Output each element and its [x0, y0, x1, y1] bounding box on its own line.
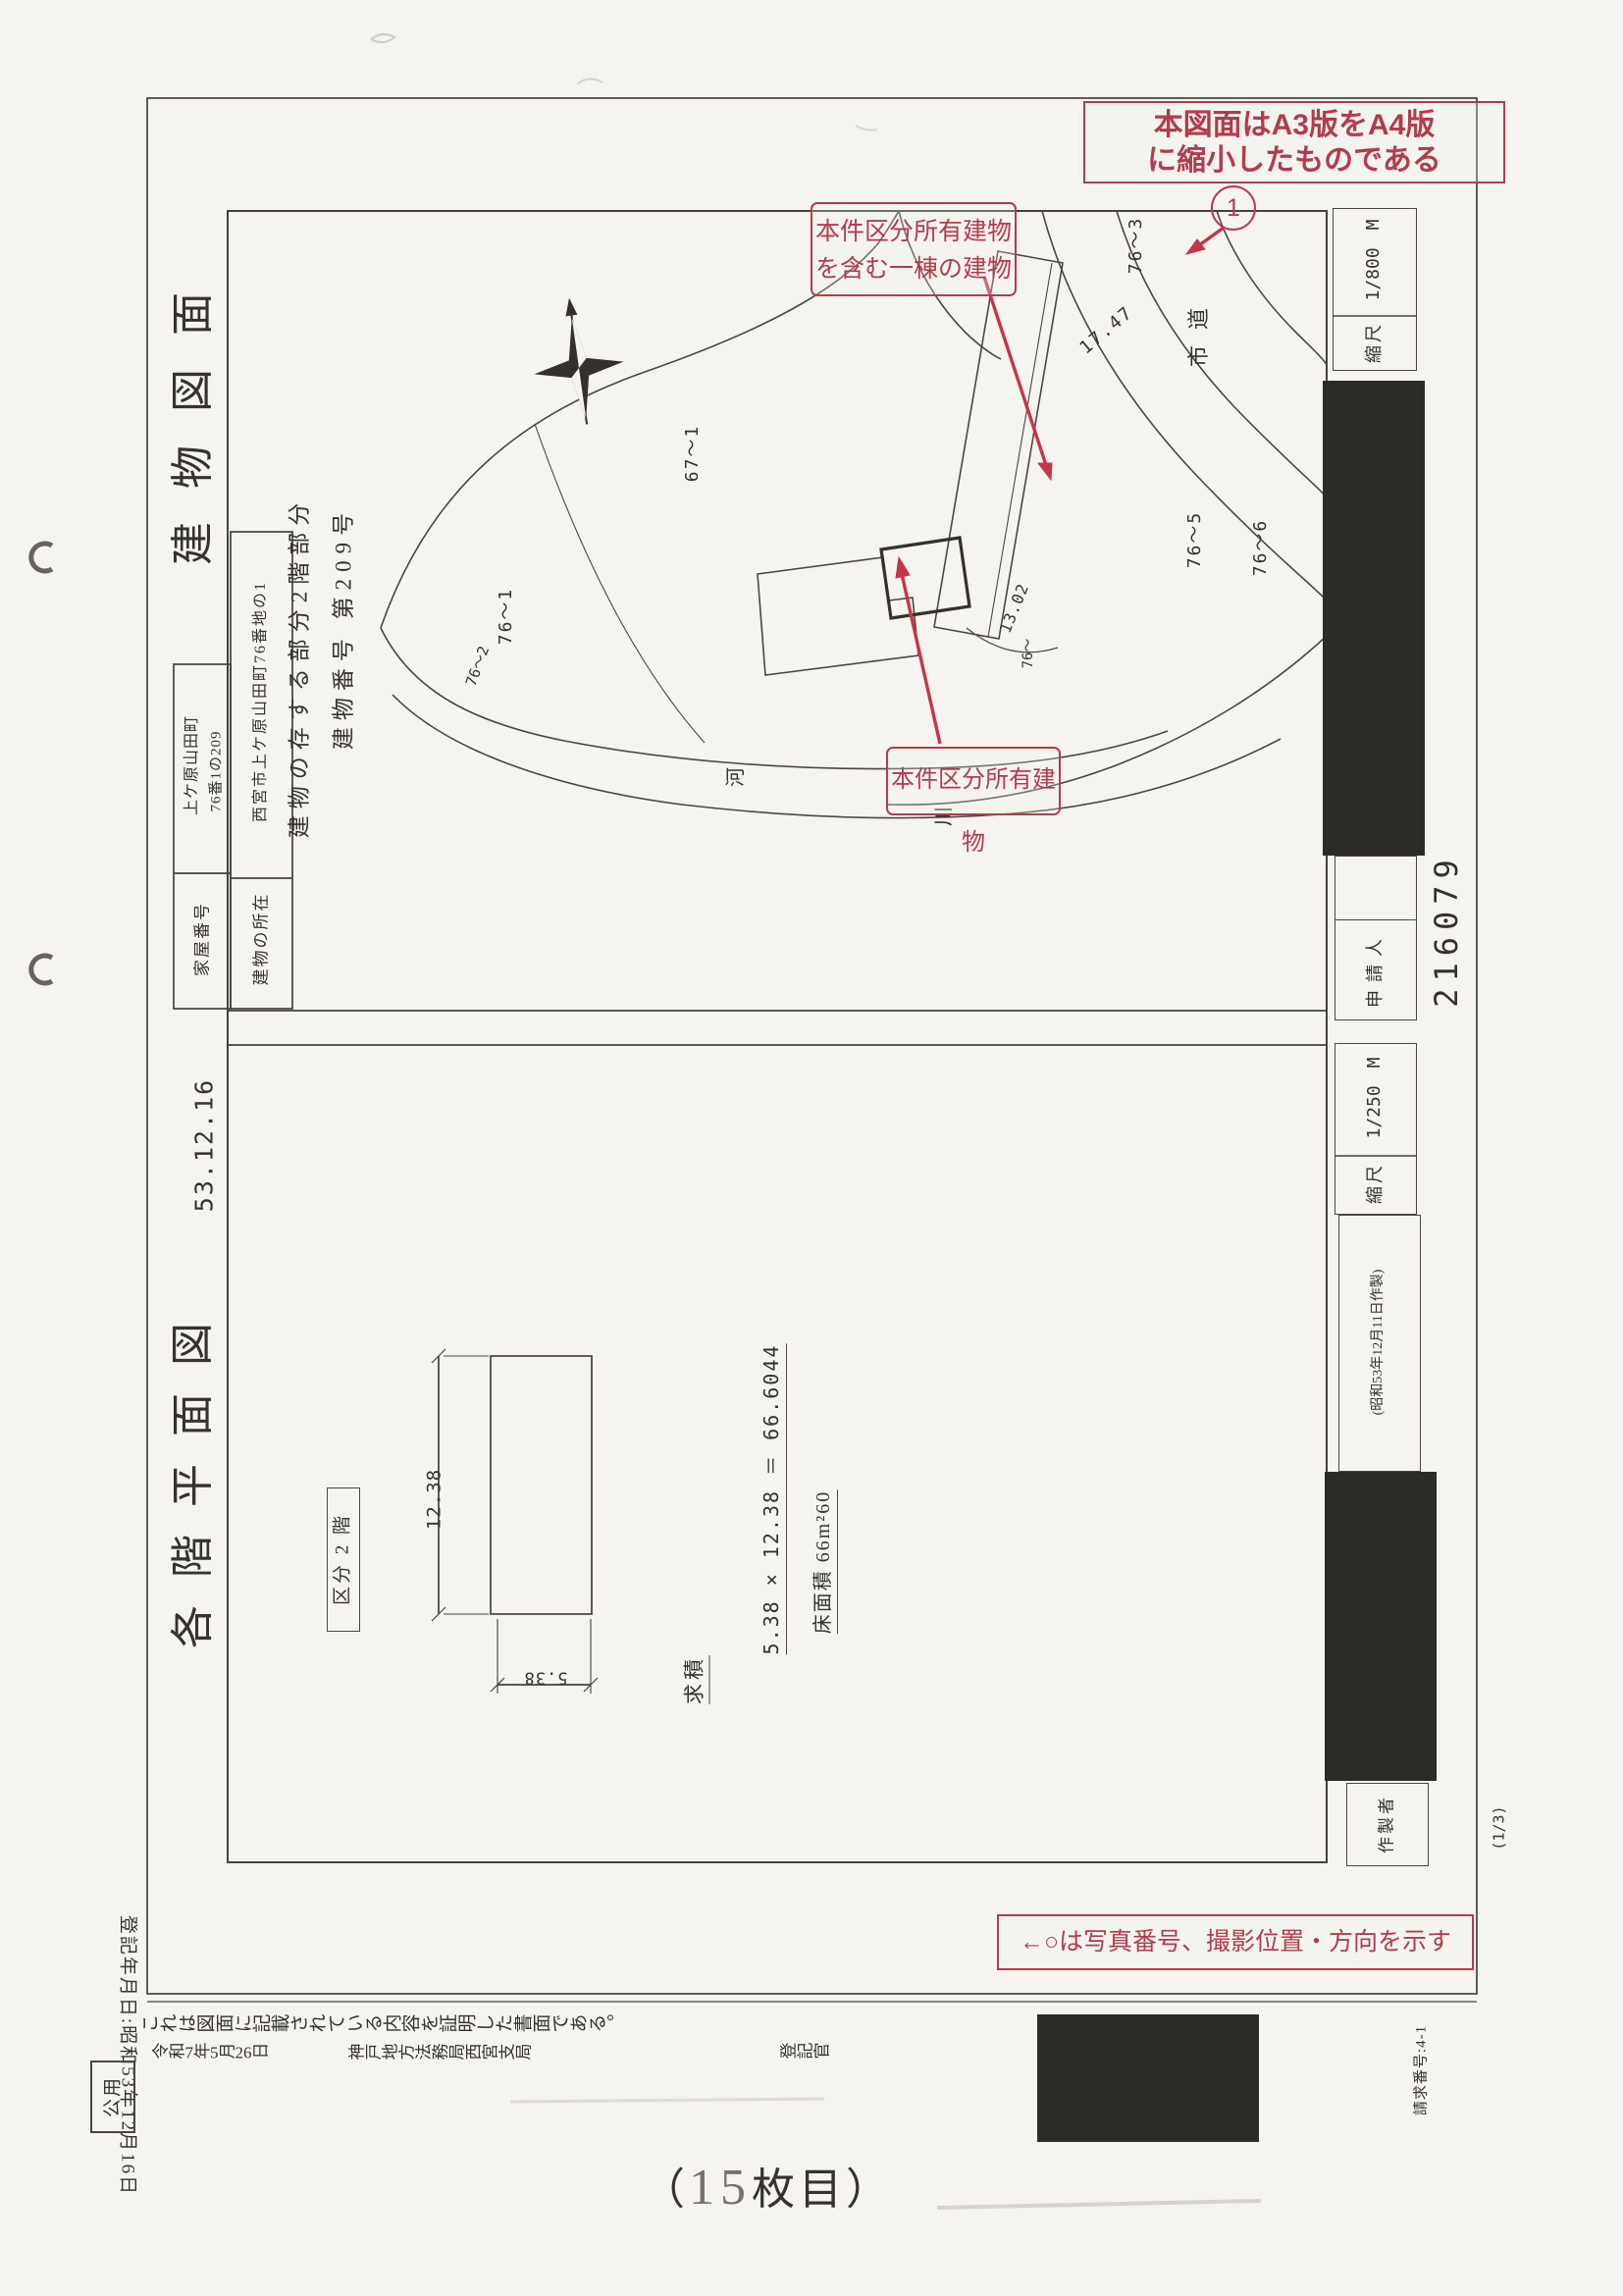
redaction-box-2	[1325, 1472, 1437, 1781]
plan-dimension-length: 12.38	[426, 1469, 445, 1530]
scale-value-upper: 1/800 M	[1365, 219, 1383, 300]
parcel-label-76-3: 76〜3	[1127, 217, 1145, 275]
parcel-label-76-part: 76〜	[1021, 639, 1035, 669]
applicant-label: 申請人	[1366, 931, 1384, 1008]
reduction-note-line2: に縮小したものである	[1085, 143, 1503, 179]
receipt-number: 216079	[1431, 853, 1462, 1008]
photo-marker-circle: 1	[1211, 185, 1256, 231]
scale-label-upper: 縮尺	[1365, 322, 1383, 363]
location-label: 建物の所在	[253, 893, 270, 986]
parcel-label-67-1: 67〜1	[684, 425, 702, 483]
location-value: 西宮市上ケ原山田町76番地の1	[253, 581, 269, 822]
house-number-label: 家屋番号	[194, 902, 211, 976]
sheet-number-stamp: 15	[689, 2160, 752, 2216]
certification-office: 神戸地方法務局西宮支局	[348, 2046, 532, 2062]
north-compass-icon	[524, 291, 631, 431]
road-label: 市道	[1188, 292, 1210, 367]
photo-marker-number: 1	[1227, 194, 1240, 223]
area-calc-label: 求積	[685, 1655, 706, 1704]
sheet-number-footer: （15枚目）	[642, 2163, 893, 2214]
containing-building-note-box: 本件区分所有建物 を含む一棟の建物	[811, 202, 1017, 296]
floor-plan-title: 各階平面図	[172, 1295, 215, 1648]
plan-dimension-width: 5.38	[524, 1669, 568, 1686]
building-diagram-title: 建物図面	[172, 259, 215, 565]
photo-legend-box: ←○は写真番号、撮影位置・方向を示す	[997, 1914, 1474, 1970]
certification-issue-date: 令和7年5月26日	[152, 2045, 269, 2061]
page-fraction: (1/3)	[1492, 1805, 1507, 1850]
sheet-note-suffix: 枚目）	[752, 2166, 893, 2214]
section-label: 区分 2 階	[334, 1513, 352, 1605]
scan-artifacts	[371, 34, 1261, 2208]
public-use-stamp: 公用	[104, 2076, 123, 2117]
river-label-a: 河	[726, 767, 746, 787]
scale-label-lower: 縮尺	[1366, 1163, 1384, 1204]
area-calc-label-text: 求積	[683, 1655, 710, 1704]
prepared-date: (昭和53年12月11日作製)	[1372, 1270, 1386, 1416]
empty-cell	[1335, 856, 1417, 920]
floor-plan-date: 53.12.16	[192, 1078, 217, 1212]
containing-building-line1: 本件区分所有建物	[812, 213, 1015, 250]
preparer-label: 作製者	[1379, 1795, 1395, 1853]
building-number-note: 建物番号 第209号	[333, 506, 355, 750]
redaction-box-1	[1323, 381, 1425, 856]
sheet-borders	[147, 98, 1477, 2002]
scanned-building-drawing-page: 建物図面 家屋番号 上ケ原山田町 76番1の209 建物の所在 西宮市上ケ原山田…	[0, 0, 1623, 2296]
hole-punch-marks	[31, 544, 52, 983]
redaction-box-3	[1037, 2014, 1259, 2142]
request-number: 請求番号:4-1	[1415, 2025, 1430, 2115]
reduction-note-line1: 本図面はA3版をA4版	[1085, 108, 1503, 143]
reduction-note-box: 本図面はA3版をA4版 に縮小したものである	[1083, 101, 1505, 183]
parcel-label-76-1: 76〜1	[497, 588, 515, 646]
floor-area-value: 床面積 66m²60	[813, 1490, 833, 1635]
certification-registrar: 登記官	[780, 2045, 830, 2061]
containing-building-line2: を含む一棟の建物	[812, 250, 1015, 287]
parcel-label-76-6: 76〜6	[1252, 519, 1270, 577]
subject-building-outline	[881, 538, 969, 618]
parcel-label-76-5: 76〜5	[1186, 511, 1204, 569]
area-calc-formula-text: 5.38 × 12.38 ＝ 66.6044	[759, 1344, 787, 1655]
registration-date: 登記年月日:昭和53年12月16日	[119, 1915, 137, 2196]
floor-area-text: 床面積 66m²60	[812, 1490, 838, 1635]
photo-direction-arrows	[896, 228, 1224, 744]
photo-legend-text: ←○は写真番号、撮影位置・方向を示す	[999, 1916, 1472, 1967]
certification-statement: これは図面に記載されている内容を証明した書面である。	[140, 2016, 625, 2035]
floor-plan-lines	[432, 1349, 598, 1694]
scale-value-lower: 1/250 M	[1366, 1057, 1384, 1138]
house-number-value-line2: 76番1の209	[210, 730, 225, 811]
house-number-value-line1: 上ケ原山田町	[184, 715, 200, 815]
subject-building-label: 本件区分所有建物	[888, 749, 1059, 874]
building-part-note: 建物の存する部分2階部分	[288, 496, 311, 839]
area-calc-formula: 5.38 × 12.38 ＝ 66.6044	[761, 1344, 781, 1655]
sheet-note-prefix: （	[642, 2166, 689, 2214]
subject-building-note-box: 本件区分所有建物	[886, 747, 1061, 815]
